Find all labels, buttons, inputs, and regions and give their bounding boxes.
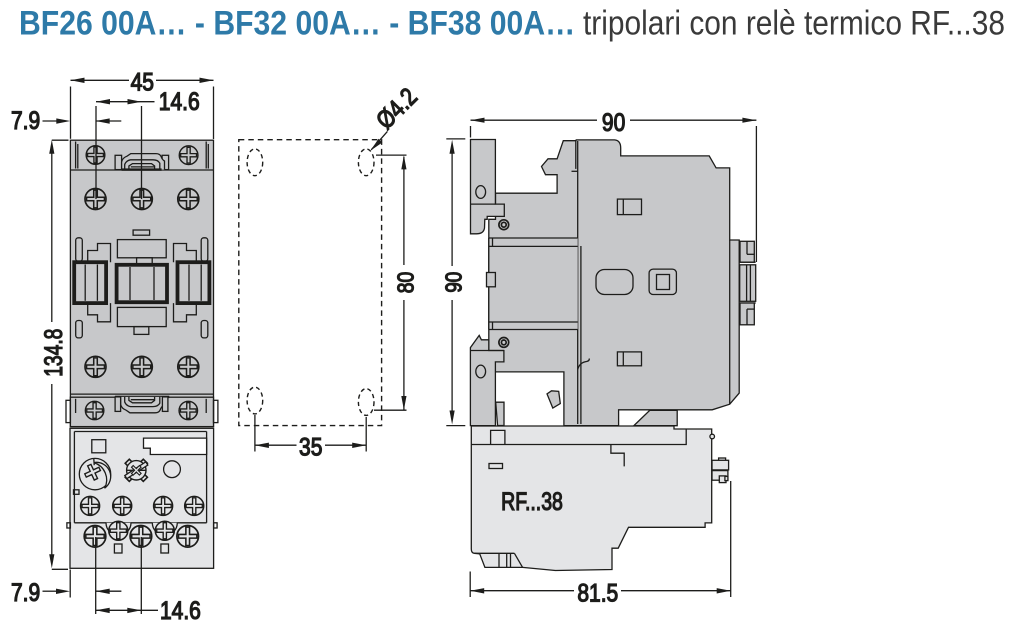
svg-text:7.9: 7.9	[11, 578, 40, 606]
svg-text:BF26 00A… - BF32 00A… - BF38 0: BF26 00A… - BF32 00A… - BF38 00A…	[19, 4, 575, 42]
svg-text:90: 90	[602, 108, 625, 136]
svg-text:80: 80	[394, 272, 419, 293]
svg-text:35: 35	[299, 433, 322, 461]
svg-text:90: 90	[442, 272, 467, 293]
svg-text:7.9: 7.9	[11, 106, 40, 134]
svg-text:Ø4.2: Ø4.2	[370, 82, 422, 134]
svg-text:14.6: 14.6	[160, 596, 201, 624]
svg-text:81.5: 81.5	[577, 579, 618, 607]
svg-text:RF...38: RF...38	[501, 488, 563, 516]
svg-text:14.6: 14.6	[159, 87, 200, 115]
svg-text:134.8: 134.8	[40, 329, 68, 377]
svg-text:tripolari con relè termico RF.: tripolari con relè termico RF...38	[583, 3, 1005, 42]
svg-text:45: 45	[131, 68, 154, 96]
